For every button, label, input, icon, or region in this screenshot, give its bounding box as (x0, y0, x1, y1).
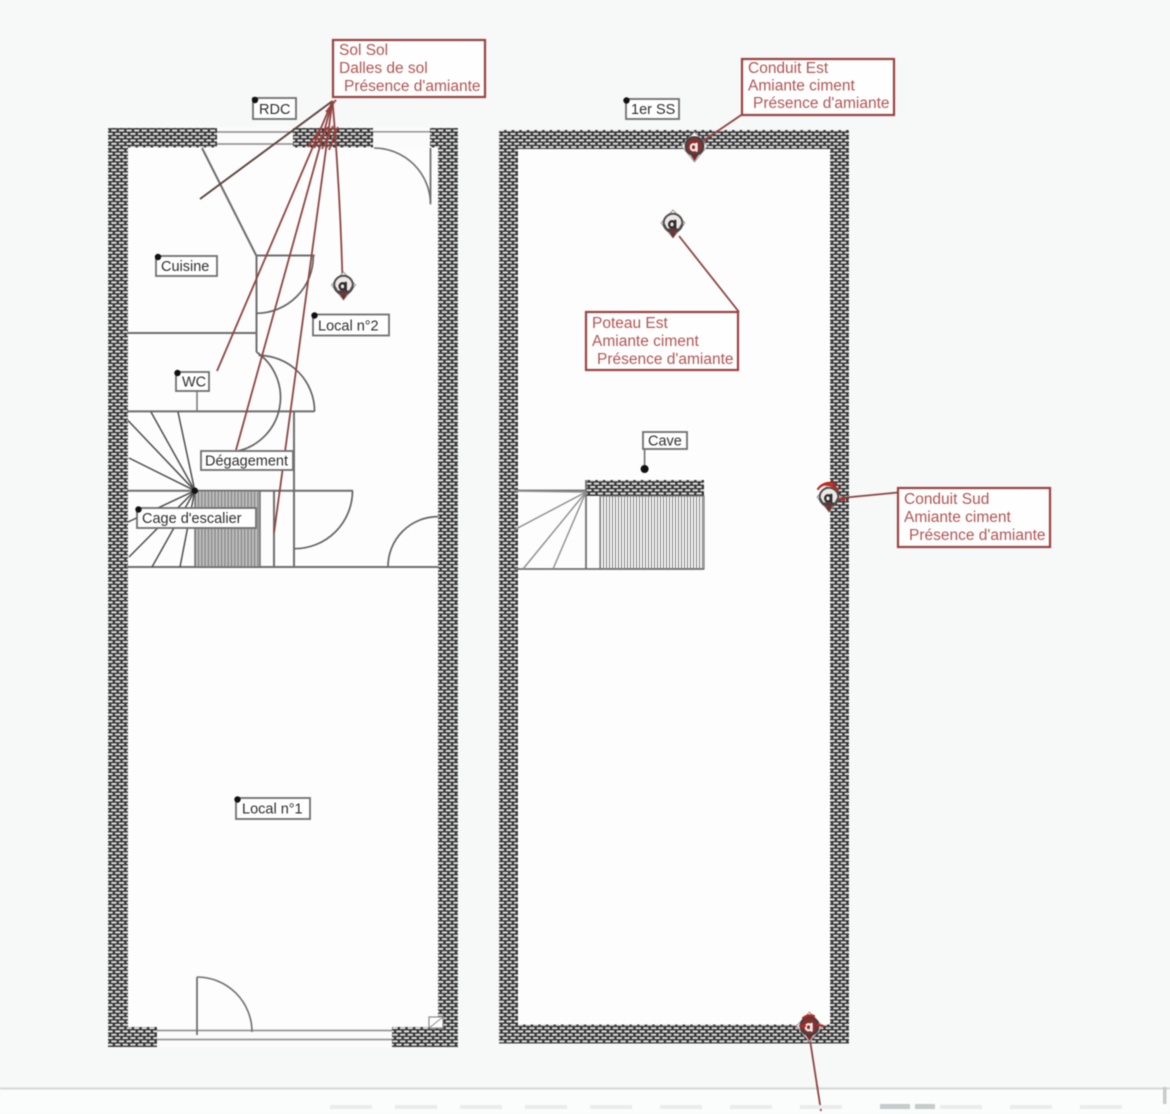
svg-text:Local n°2: Local n°2 (318, 319, 379, 335)
svg-text:Amiante ciment: Amiante ciment (748, 78, 856, 95)
svg-text:Amiante ciment: Amiante ciment (904, 509, 1012, 526)
svg-text:Présence d'amiante: Présence d'amiante (344, 78, 481, 95)
svg-text:RDC: RDC (259, 102, 290, 118)
svg-text:Cave: Cave (648, 434, 682, 450)
svg-text:Dégagement: Dégagement (205, 454, 288, 470)
svg-text:WC: WC (182, 375, 206, 391)
svg-text:Présence d'amiante: Présence d'amiante (753, 95, 890, 112)
svg-text:Poteau Est: Poteau Est (592, 315, 669, 332)
svg-text:Conduit Sud: Conduit Sud (904, 491, 989, 508)
svg-text:Présence d'amiante: Présence d'amiante (909, 527, 1046, 544)
svg-text:Conduit Est: Conduit Est (748, 60, 829, 77)
svg-text:Cuisine: Cuisine (161, 259, 209, 275)
svg-text:Local n°1: Local n°1 (242, 802, 303, 818)
svg-text:Présence d'amiante: Présence d'amiante (597, 351, 734, 368)
svg-text:Amiante ciment: Amiante ciment (592, 333, 700, 350)
svg-text:Sol Sol: Sol Sol (339, 42, 388, 59)
svg-text:Cage d'escalier: Cage d'escalier (142, 511, 242, 527)
svg-text:Dalles de sol: Dalles de sol (339, 60, 428, 77)
svg-text:1er SS: 1er SS (631, 102, 675, 118)
